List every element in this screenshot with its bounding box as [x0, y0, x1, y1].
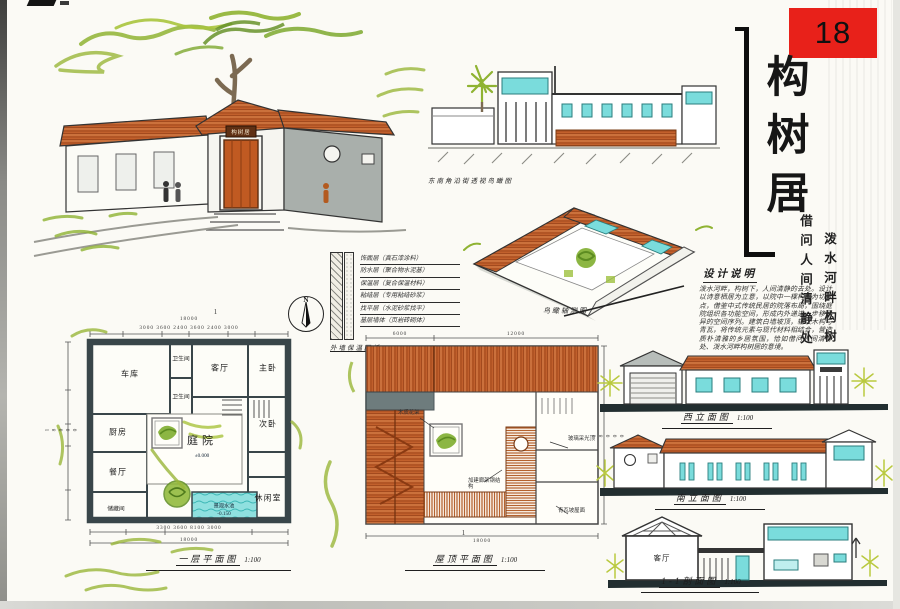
- aerial-caption: 鸟瞰轴测图: [543, 306, 588, 316]
- roof-note-tile: 青瓦坡屋面: [558, 508, 594, 514]
- room-label-master: 主卧: [259, 363, 277, 374]
- roof-dim-top-left: 6000: [393, 331, 408, 337]
- room-label-living: 客厅: [211, 363, 229, 374]
- street-perspective-caption: 东南角沿街透视鸟瞰图: [428, 175, 513, 185]
- south-elevation-caption: 南立面图1:100: [655, 488, 765, 510]
- wall-layer: 保温层（复合保温材料）: [360, 278, 460, 290]
- roof-plan-caption: 屋顶平面图1:100: [405, 549, 545, 571]
- wall-layer: 粘结层（专用粘结砂浆）: [360, 290, 460, 302]
- dim-left-total: 18000: [45, 427, 80, 433]
- room-label-bath2: 卫生间: [172, 392, 189, 401]
- dim-top-segments: 3000 3600 2400 3600 2400 3000: [139, 325, 238, 331]
- sheet-number: 18: [815, 15, 851, 51]
- scan-edge-right: [893, 0, 900, 609]
- wall-layer: 找平层（水泥砂浆找平）: [360, 303, 460, 315]
- roof-note-pergola: 木质花架: [398, 410, 434, 416]
- pool-level: -0.150: [217, 511, 230, 517]
- room-label-courtyard: 庭院: [187, 432, 217, 448]
- wall-layer: 基层墙体（页岩砖砌体）: [360, 315, 460, 327]
- door-plaque: 构树居: [231, 128, 251, 136]
- roof-dim-bottom: 18000: [473, 538, 491, 544]
- wall-detail-insulation: [344, 252, 354, 340]
- room-label-garage: 车库: [121, 369, 139, 380]
- level-courtyard: ±0.000: [195, 453, 210, 459]
- room-label-kitchen: 厨房: [109, 427, 127, 438]
- section-caption: 1-1剖面图1:100: [641, 571, 759, 593]
- room-label-leisure: 休闲室: [255, 493, 282, 504]
- room-label-dining: 餐厅: [109, 467, 127, 478]
- title-bracket: [744, 27, 749, 257]
- title-bracket-tick: [735, 27, 746, 31]
- room-label-second: 次卧: [259, 419, 277, 430]
- section-marker-bottom: 1: [462, 529, 467, 537]
- section-room-label: 客厅: [654, 553, 671, 564]
- dim-bottom-segments: 3300 3600 8100 3000: [156, 525, 221, 531]
- wall-detail-hatch: [330, 252, 343, 340]
- pool-label: 景观水池: [214, 503, 235, 510]
- roof-dim-top-right: 12000: [507, 331, 525, 337]
- dim-bottom-total: 18000: [180, 537, 198, 543]
- scan-edge-left: [0, 0, 7, 609]
- greenery-scribble-vertical: [316, 458, 346, 550]
- presentation-board: 18 构树居 借问人间清静处 泼水河畔构树居 设计说明 泼水河畔，构树下，人间清…: [0, 0, 900, 609]
- roof-note-steel: 加建廊架钢结构: [468, 478, 504, 491]
- sheet-number-tag: 18: [789, 8, 877, 58]
- greenery-scribble: [56, 558, 226, 603]
- room-label-storage: 储藏间: [107, 504, 124, 513]
- room-label-bath1: 卫生间: [172, 354, 189, 363]
- wall-detail-layers: 饰面层（真石漆涂料） 防水层（聚合物水泥基） 保温层（复合保温材料） 粘结层（专…: [360, 253, 460, 327]
- street-perspective-drawing: [424, 46, 724, 178]
- title-dash: [799, 183, 802, 210]
- dim-top-total: 18000: [180, 316, 198, 322]
- section-marker-top: 1: [214, 308, 219, 316]
- wall-layer: 饰面层（真石漆涂料）: [360, 253, 460, 265]
- design-notes-body: 泼水河畔，构树下，人间清静的去处。设计以诗意栖居为立意，以院中一棵构树为切入点，…: [699, 286, 832, 352]
- wall-layer: 防水层（聚合物水泥基）: [360, 265, 460, 277]
